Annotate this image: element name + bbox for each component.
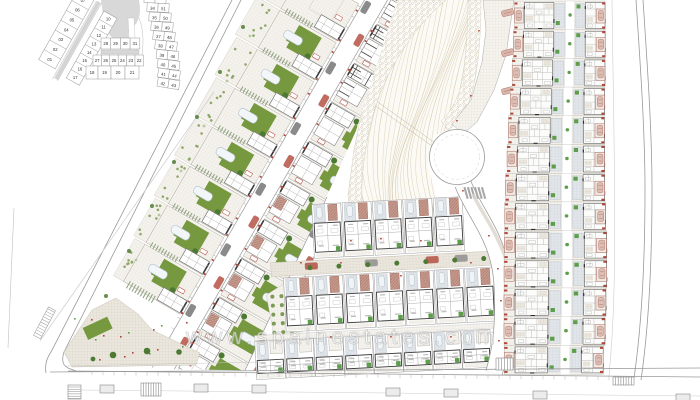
svg-text:16: 16 [78,67,83,72]
svg-text:05: 05 [70,17,75,22]
svg-text:14: 14 [87,50,92,55]
svg-text:28: 28 [103,41,108,46]
svg-text:27: 27 [95,58,100,63]
svg-text:11: 11 [101,25,106,30]
svg-text:02: 02 [53,47,58,52]
svg-text:04: 04 [64,27,69,32]
svg-text:20: 20 [116,70,121,75]
svg-text:13: 13 [92,42,97,47]
svg-text:31: 31 [133,41,138,46]
svg-text:29: 29 [113,41,118,46]
svg-text:07: 07 [81,0,86,3]
svg-text:30: 30 [123,41,128,46]
svg-text:25: 25 [112,58,117,63]
svg-text:22: 22 [137,58,142,63]
svg-text:51: 51 [161,6,167,11]
svg-text:18: 18 [90,70,95,75]
svg-text:12: 12 [96,33,101,38]
svg-text:34: 34 [150,6,156,11]
svg-text:17: 17 [73,75,78,80]
svg-text:www.spainestates.com: www.spainestates.com [185,324,500,349]
svg-text:15: 15 [82,58,87,63]
svg-text:50: 50 [163,16,169,21]
svg-text:10: 10 [106,16,111,21]
svg-text:03: 03 [58,37,63,42]
svg-text:01: 01 [47,57,52,62]
svg-text:19: 19 [102,70,107,75]
svg-text:06: 06 [75,8,80,13]
svg-text:21: 21 [130,70,135,75]
svg-text:35: 35 [152,15,158,20]
svg-text:23: 23 [128,58,133,63]
svg-text:24: 24 [120,58,125,63]
svg-text:26: 26 [103,58,108,63]
